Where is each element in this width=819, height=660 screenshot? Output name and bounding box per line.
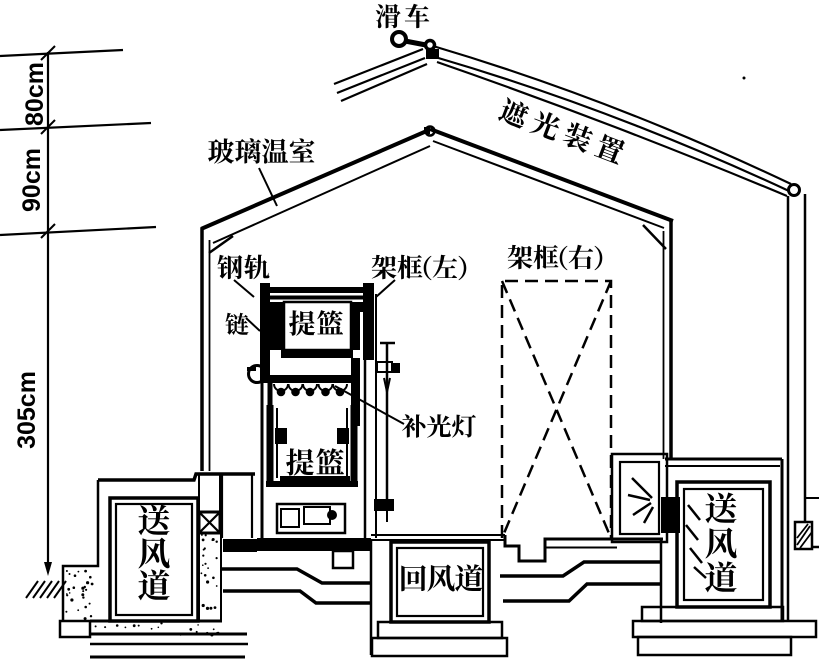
svg-text:80cm: 80cm (21, 62, 49, 126)
svg-text:305cm: 305cm (13, 371, 41, 449)
svg-text:90cm: 90cm (18, 148, 46, 212)
